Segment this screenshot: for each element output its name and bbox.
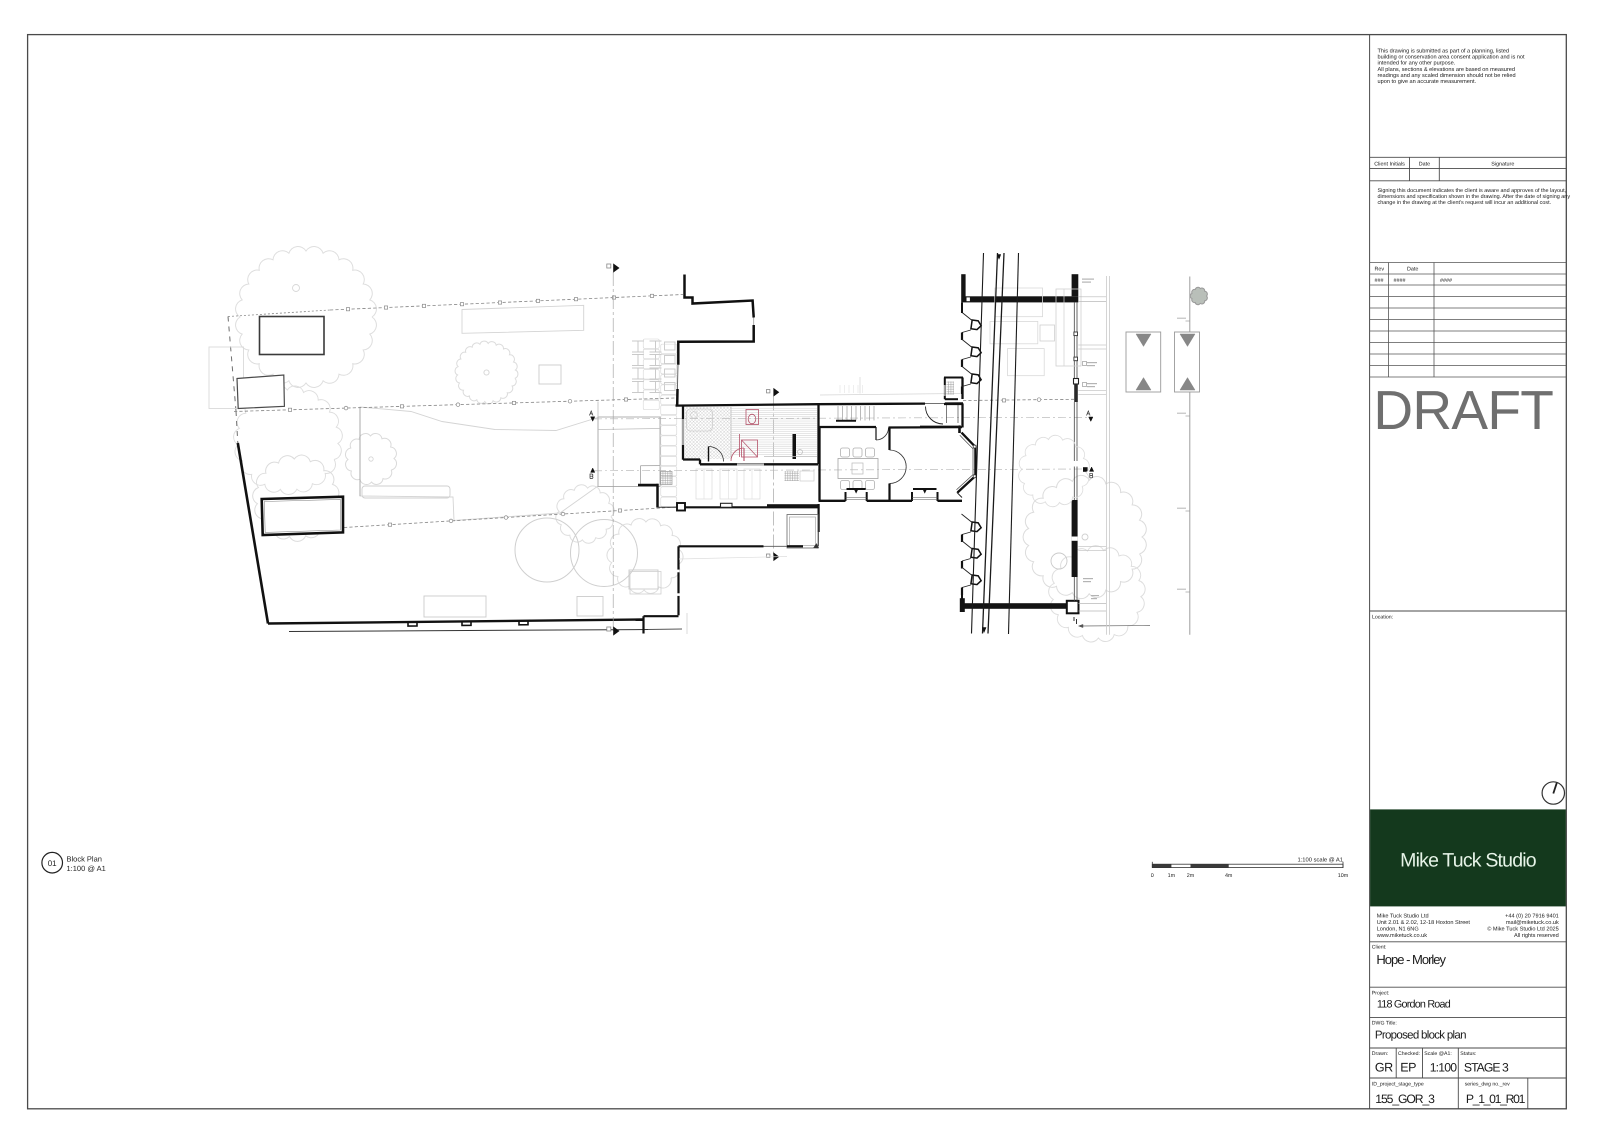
svg-text:EP: EP [1400, 1060, 1416, 1074]
svg-text:building or conservation area: building or conservation area consent ap… [1378, 54, 1526, 61]
svg-text:London, N1 6NG: London, N1 6NG [1377, 926, 1419, 933]
svg-text:dimensions and specification s: dimensions and specification shown in th… [1378, 194, 1571, 200]
svg-text:Client Initials: Client Initials [1374, 161, 1405, 167]
svg-text:ID_project_stage_type: ID_project_stage_type [1372, 1082, 1424, 1088]
svg-text:+44 (0) 20 7916 9401: +44 (0) 20 7916 9401 [1505, 913, 1559, 920]
svg-text:####: #### [1394, 278, 1406, 284]
svg-text:Date: Date [1407, 267, 1418, 273]
svg-text:Signing this document indicate: Signing this document indicates the clie… [1378, 188, 1567, 194]
svg-text:118 Gordon Road: 118 Gordon Road [1377, 998, 1451, 1010]
svg-text:mail@miketuck.co.uk: mail@miketuck.co.uk [1506, 919, 1559, 926]
svg-text:intended for any other purpose: intended for any other purpose. [1378, 60, 1456, 67]
svg-text:Date: Date [1419, 161, 1430, 167]
svg-text:Scale @A1:: Scale @A1: [1424, 1051, 1451, 1057]
svg-text:1:100 @ A1: 1:100 @ A1 [67, 864, 106, 873]
svg-text:Mike Tuck Studio Ltd: Mike Tuck Studio Ltd [1377, 913, 1429, 920]
svg-text:1m: 1m [1168, 873, 1176, 879]
svg-text:2m: 2m [1187, 873, 1195, 879]
svg-text:www.miketuck.co.uk: www.miketuck.co.uk [1376, 932, 1428, 939]
svg-text:© Mike Tuck Studio Ltd 2025: © Mike Tuck Studio Ltd 2025 [1487, 926, 1559, 933]
svg-text:####: #### [1440, 278, 1452, 284]
svg-text:###: ### [1375, 278, 1384, 284]
svg-text:Proposed block plan: Proposed block plan [1375, 1030, 1466, 1042]
svg-text:Status:: Status: [1460, 1051, 1476, 1057]
svg-text:upon to give an accurate measu: upon to give an accurate measurement. [1378, 78, 1477, 85]
svg-text:Signature: Signature [1491, 161, 1514, 167]
svg-text:Drawn:: Drawn: [1372, 1051, 1388, 1057]
svg-text:Block Plan: Block Plan [67, 855, 102, 864]
svg-text:Client:: Client: [1372, 945, 1387, 951]
svg-text:Location:: Location: [1372, 615, 1393, 621]
svg-text:Rev: Rev [1375, 267, 1385, 273]
svg-text:DWG Title:: DWG Title: [1372, 1021, 1397, 1027]
svg-text:series_dwg no._rev: series_dwg no._rev [1465, 1082, 1510, 1088]
svg-text:10m: 10m [1338, 873, 1349, 879]
svg-text:DRAFT: DRAFT [1373, 379, 1553, 441]
svg-text:All rights reserved: All rights reserved [1514, 932, 1559, 939]
svg-text:Mike Tuck Studio: Mike Tuck Studio [1400, 850, 1537, 872]
svg-text:readings and any scaled dimens: readings and any scaled dimension should… [1378, 72, 1516, 79]
svg-text:Project:: Project: [1372, 991, 1390, 997]
svg-text:4m: 4m [1225, 873, 1233, 879]
svg-text:Hope - Morley: Hope - Morley [1376, 952, 1446, 967]
svg-text:01: 01 [48, 859, 57, 868]
svg-text:P_1_01_R01: P_1_01_R01 [1466, 1092, 1526, 1106]
svg-text:change in the drawing at the c: change in the drawing at the client's re… [1378, 200, 1552, 206]
svg-text:155_GOR_3: 155_GOR_3 [1375, 1092, 1435, 1106]
svg-text:Checked:: Checked: [1398, 1051, 1420, 1057]
svg-text:This drawing is submitted as p: This drawing is submitted as part of a p… [1378, 48, 1510, 55]
svg-text:STAGE 3: STAGE 3 [1464, 1060, 1509, 1074]
svg-text:0: 0 [1151, 873, 1154, 879]
svg-text:All plans, sections & elevatio: All plans, sections & elevations are bas… [1378, 66, 1515, 73]
svg-text:1:100: 1:100 [1430, 1060, 1458, 1074]
svg-text:1:100 scale @ A1: 1:100 scale @ A1 [1297, 857, 1343, 864]
svg-text:Unit 2.01 & 2.02, 12-18 Hoxton: Unit 2.01 & 2.02, 12-18 Hoxton Street [1377, 919, 1471, 926]
svg-text:GR: GR [1375, 1060, 1393, 1074]
